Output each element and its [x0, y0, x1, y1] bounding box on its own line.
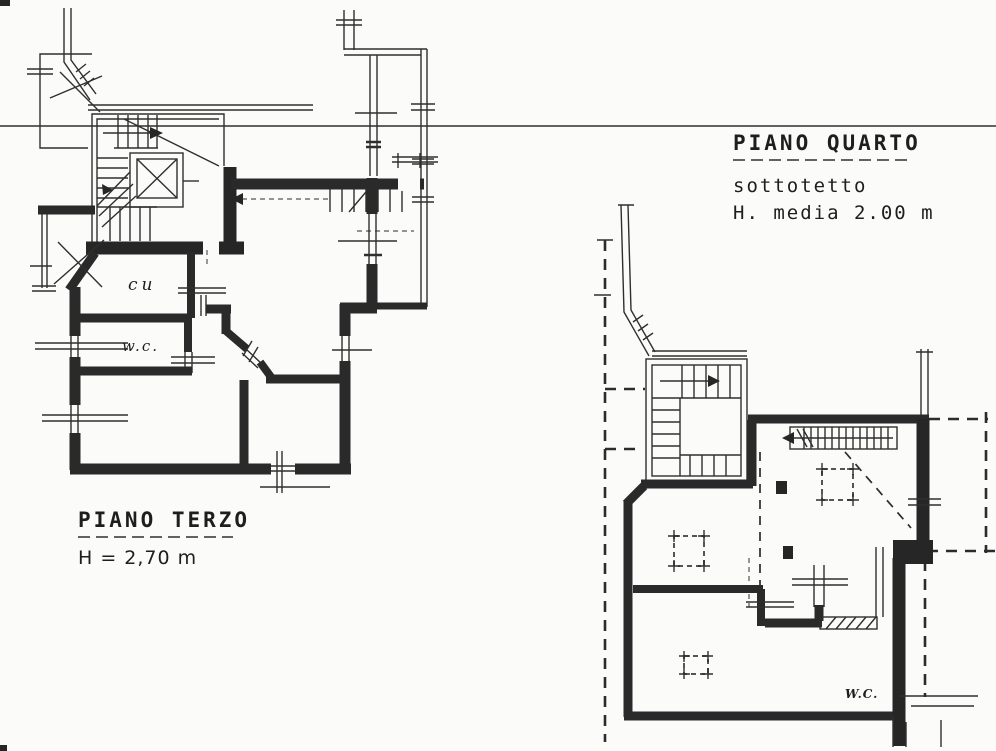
interior-walls: [70, 252, 343, 468]
room-label-wc: w.c.: [122, 337, 159, 355]
plan-title-terzo: PIANO TERZO: [78, 508, 250, 532]
floor-plan-drawing: cu w.c. PIANO TERZO H = 2,70 m: [0, 0, 996, 751]
winder-arrow-icon: [102, 184, 113, 195]
plan-piano-quarto: W.C. PIANO QUARTO sottotetto H. media 2.…: [594, 131, 995, 747]
attic-outer-walls: [624, 419, 941, 747]
window-opening: [398, 177, 420, 191]
pillar: [783, 546, 793, 559]
skylight-3: [679, 651, 713, 679]
roof-boundary-dashes: [594, 240, 995, 742]
roof-ridge-dashed: [845, 452, 911, 528]
plan-subtitle-quarto: sottotetto: [733, 175, 867, 197]
height-note-terzo: H = 2,70 m: [78, 547, 197, 569]
room-label-kitchen: cu: [128, 275, 156, 295]
scanned-floorplan-page: cu w.c. PIANO TERZO H = 2,70 m: [0, 0, 996, 751]
attic-interior-walls: [633, 547, 883, 629]
skylight-1: [816, 463, 859, 506]
elevator-shaft-icon: [130, 153, 199, 207]
skylight-2: [668, 530, 710, 572]
roof-hatch-stair: [782, 427, 897, 449]
duct-top-left: [50, 8, 102, 112]
floor-edge-line: [88, 105, 313, 110]
stairwell: [86, 114, 244, 268]
hatch-arrow-icon: [782, 432, 794, 444]
balcony-top-left: [27, 54, 92, 148]
stairwell-quarto: [646, 359, 747, 481]
room-label-wc: W.C.: [845, 687, 878, 701]
height-note-quarto: H. media 2.00 m: [733, 202, 935, 224]
chimney-duct: [618, 205, 933, 417]
eaves-lines: [899, 696, 978, 747]
stair-direction-arrow-icon: [103, 127, 163, 139]
plan-title-quarto: PIANO QUARTO: [733, 131, 921, 155]
hatched-new-wall: [820, 617, 877, 629]
plan-piano-terzo: cu w.c. PIANO TERZO H = 2,70 m: [27, 8, 438, 569]
pillar: [776, 481, 787, 494]
skylight-markers: [668, 463, 859, 679]
